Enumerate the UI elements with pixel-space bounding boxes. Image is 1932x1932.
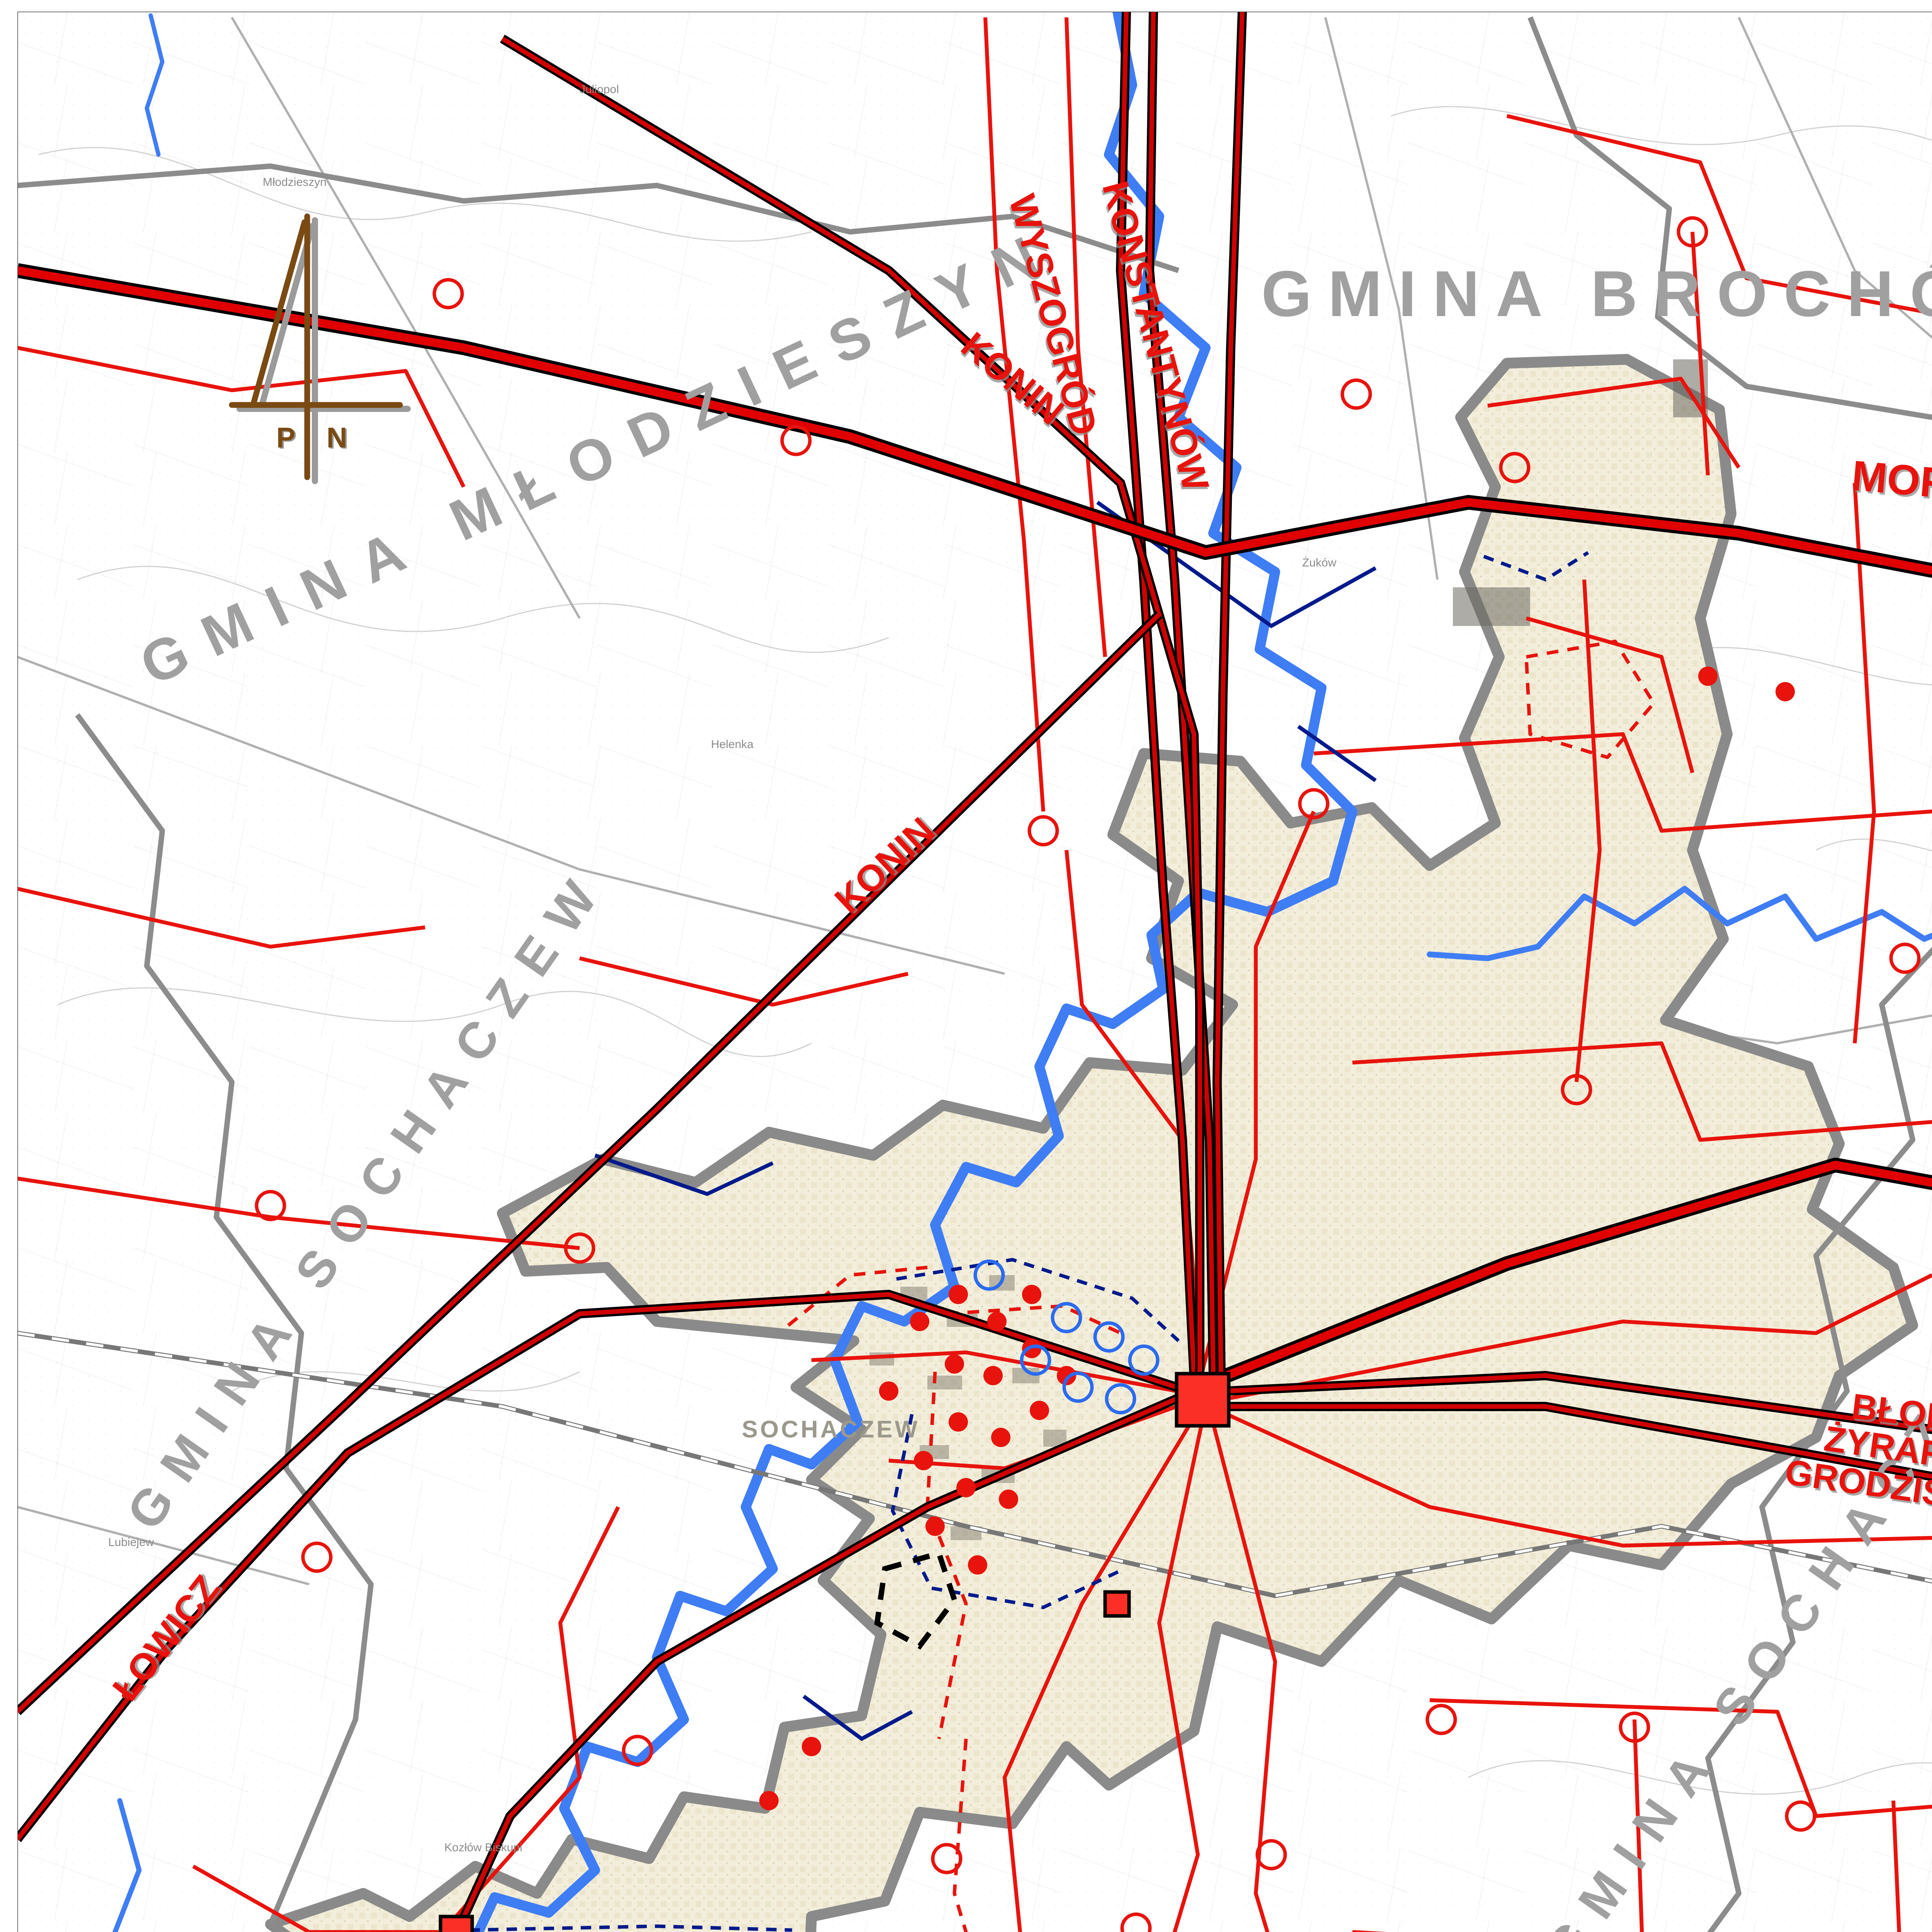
label-mory-1: MORY	[1850, 454, 1932, 508]
stream-north	[147, 15, 162, 155]
label-gmina-brochow: GMINA BROCHÓW	[1261, 261, 1932, 326]
topo-label-kozlow: Kozłów Biskupi	[444, 1841, 522, 1854]
city-area	[270, 359, 1913, 1932]
label-city-small: SOCHACZEW	[742, 1418, 920, 1442]
map-sheet: GMINA MŁODZIESZYN GMINA BROCHÓW GMINA SO…	[0, 0, 1932, 1932]
topo-label-zukow: Żuków	[1302, 556, 1336, 570]
topo-label-lubiejew: Lubiejew	[108, 1536, 154, 1549]
topo-label-mlodzieszyn: Młodzieszyn	[263, 176, 327, 189]
topo-label-helenka: Helenka	[711, 738, 753, 751]
north-arrow-letter-p: P	[276, 421, 295, 454]
stream-west	[104, 1801, 139, 1932]
north-arrow-letter-n: N	[327, 421, 347, 454]
north-arrow	[232, 216, 408, 481]
topo-label-juliopol: Juliopol	[580, 83, 619, 96]
